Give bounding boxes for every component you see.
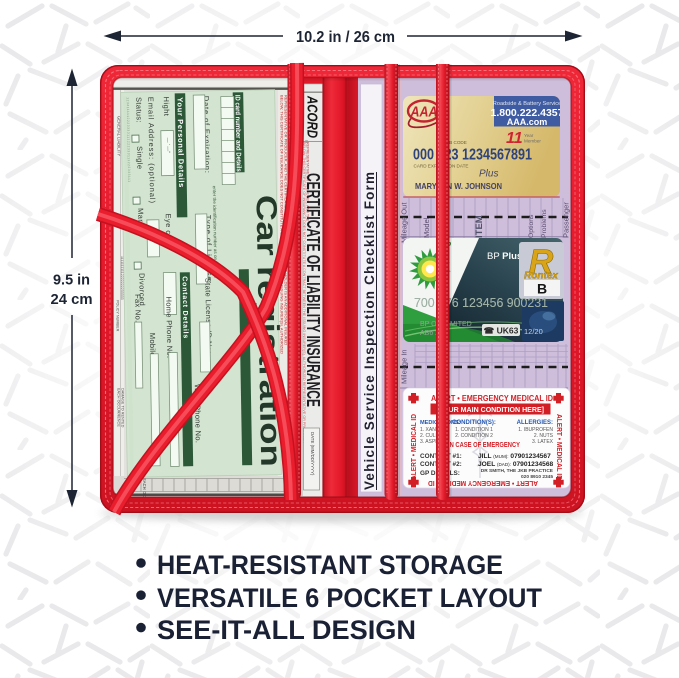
- svg-text:9.5 in: 9.5 in: [53, 272, 90, 289]
- svg-text:Options: Options: [528, 214, 535, 238]
- svg-text:EACH OCCURRENCE: EACH OCCURRENCE: [117, 388, 121, 427]
- svg-text:24 cm: 24 cm: [51, 291, 93, 308]
- svg-text:ACORD: ACORD: [304, 95, 320, 138]
- svg-text:POLICY NUMBER: POLICY NUMBER: [116, 300, 120, 332]
- svg-text:IN CASE OF EMERGENCY: IN CASE OF EMERGENCY: [448, 442, 520, 449]
- svg-text:ALERT • MEDICAL ID: ALERT • MEDICAL ID: [411, 414, 418, 480]
- svg-text:12/20: 12/20: [524, 327, 543, 336]
- svg-text:MARYANN W. JOHNSON: MARYANN W. JOHNSON: [415, 182, 502, 191]
- svg-text:Mileage In: Mileage In: [400, 349, 409, 384]
- svg-text:Vehicle Service Inspection Che: Vehicle Service Inspection Checklist For…: [362, 172, 377, 490]
- svg-text:HEAT-RESISTANT STORAGE: HEAT-RESISTANT STORAGE: [157, 550, 503, 580]
- svg-text:Email Address: (optional): Email Address: (optional): [146, 97, 157, 204]
- svg-text:Home Phone No.: Home Phone No.: [164, 296, 174, 358]
- svg-text:Hight: Hight: [162, 96, 171, 116]
- svg-text:BP Plus: BP Plus: [487, 251, 522, 262]
- svg-text:2. CONDITION 2: 2. CONDITION 2: [455, 433, 493, 439]
- svg-text:Single: Single: [135, 146, 144, 170]
- svg-text:Plus: Plus: [479, 169, 498, 180]
- svg-text:Problems: Problems: [541, 209, 548, 238]
- svg-text:[YOUR MAIN CONDITION HERE]: [YOUR MAIN CONDITION HERE]: [436, 405, 544, 414]
- svg-text:DAMAGE TO RENTED: DAMAGE TO RENTED: [121, 388, 125, 428]
- svg-text:☎ UK63: ☎ UK63: [484, 326, 519, 336]
- svg-text:VERSATILE 6 POCKET LAYOUT: VERSATILE 6 POCKET LAYOUT: [157, 583, 542, 613]
- svg-text:700 976 123456 900231: 700 976 123456 900231: [414, 296, 548, 310]
- svg-text:ALERT • MEDICAL ID: ALERT • MEDICAL ID: [555, 414, 562, 480]
- svg-text:B: B: [537, 281, 547, 297]
- svg-text:ITEM: ITEM: [474, 215, 485, 238]
- svg-text:Contact Details: Contact Details: [181, 276, 189, 338]
- svg-text:— ' —": — ' —": [164, 138, 170, 154]
- svg-text:DATE (MM/DD/YYYY): DATE (MM/DD/YYYY): [310, 432, 315, 476]
- svg-text:10.2 in / 26 cm: 10.2 in / 26 cm: [296, 29, 395, 46]
- svg-text:CONDITION(S):: CONDITION(S):: [452, 420, 496, 426]
- svg-text:3. LATEX: 3. LATEX: [532, 439, 554, 445]
- svg-text:Mileage Out: Mileage Out: [400, 202, 409, 243]
- svg-text:Passenger: Passenger: [562, 202, 571, 238]
- svg-text:Status:: Status:: [134, 97, 143, 123]
- svg-text:AAA.com: AAA.com: [507, 117, 548, 127]
- svg-text:JOEL (DAD): 07901234568: JOEL (DAD): 07901234568: [478, 461, 553, 468]
- svg-text:DR SMITH, THE JKB PRACTICE: DR SMITH, THE JKB PRACTICE: [481, 468, 554, 474]
- svg-text:ALLERGIES:: ALLERGIES:: [517, 420, 553, 426]
- svg-text:Fax No.: Fax No.: [133, 294, 142, 323]
- svg-text:000 123 1234567891: 000 123 1234567891: [413, 147, 532, 164]
- svg-text:Year: Year: [524, 133, 534, 138]
- svg-text:JILL (MUM): 07901234567: JILL (MUM): 07901234567: [478, 453, 551, 460]
- svg-text:Your Personal Details: Your Personal Details: [175, 97, 186, 187]
- svg-text:AAA: AAA: [410, 104, 438, 121]
- svg-text:SEE-IT-ALL DESIGN: SEE-IT-ALL DESIGN: [157, 615, 416, 645]
- svg-text:CERTIFICATE OF LIABILITY INSUR: CERTIFICATE OF LIABILITY INSURANCE: [303, 173, 324, 407]
- svg-text:11: 11: [506, 130, 523, 147]
- svg-text:Member: Member: [524, 139, 541, 144]
- svg-text:Model: Model: [422, 217, 431, 238]
